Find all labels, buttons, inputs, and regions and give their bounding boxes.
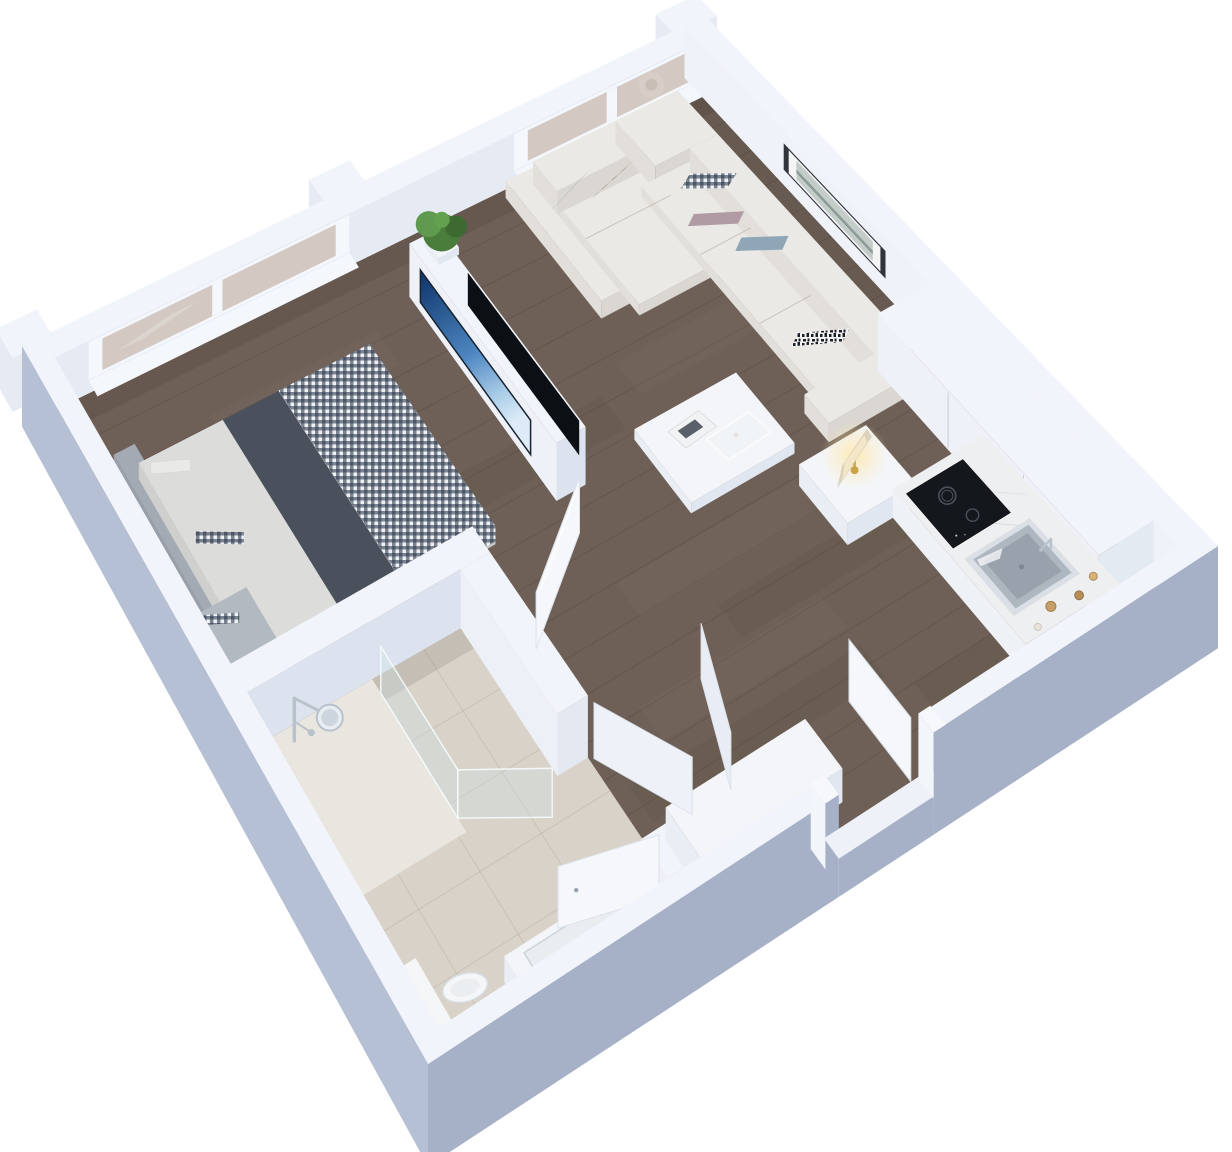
- floorplan-stage: [0, 0, 1232, 1152]
- lamp: [821, 421, 889, 489]
- floorplan-3d-render: [0, 0, 1232, 1152]
